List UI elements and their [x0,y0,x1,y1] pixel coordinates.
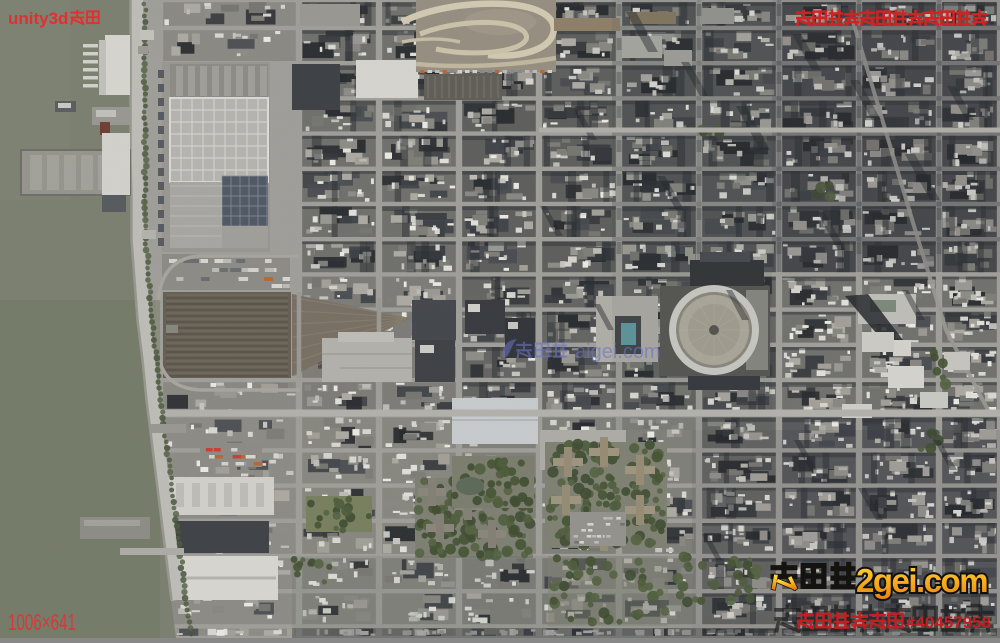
svg-text:aigei.com: aigei.com [575,341,661,363]
svg-text:2gei.com: 2gei.com [856,562,987,599]
svg-text:#40457958: #40457958 [906,613,991,632]
svg-text:1006×641: 1006×641 [8,610,76,636]
svg-text:unity3d: unity3d [8,9,68,28]
